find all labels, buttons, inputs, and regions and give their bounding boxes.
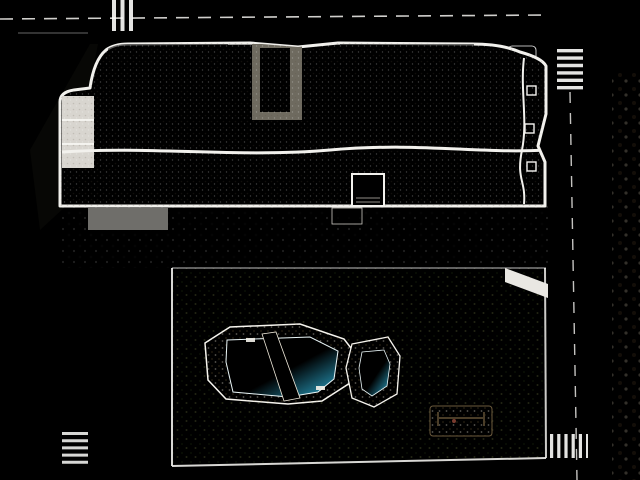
entrance-gap (352, 174, 384, 206)
playground (430, 406, 492, 436)
kids-pool (346, 337, 400, 407)
dirt-texture (612, 70, 640, 480)
scene-svg (0, 0, 640, 480)
terrace-entrance (352, 174, 384, 206)
entrance-steps (332, 208, 362, 224)
bike-shed (88, 208, 168, 230)
pool-step (316, 386, 325, 390)
building (60, 43, 546, 206)
main-pool (205, 324, 354, 404)
playground-texture (430, 406, 492, 436)
aerial-render-scene (0, 0, 640, 480)
gravel-texture (60, 43, 546, 206)
playground-figure (452, 419, 456, 423)
roof-details (60, 43, 546, 206)
promenade-items (332, 208, 362, 224)
pool-step (246, 338, 255, 342)
